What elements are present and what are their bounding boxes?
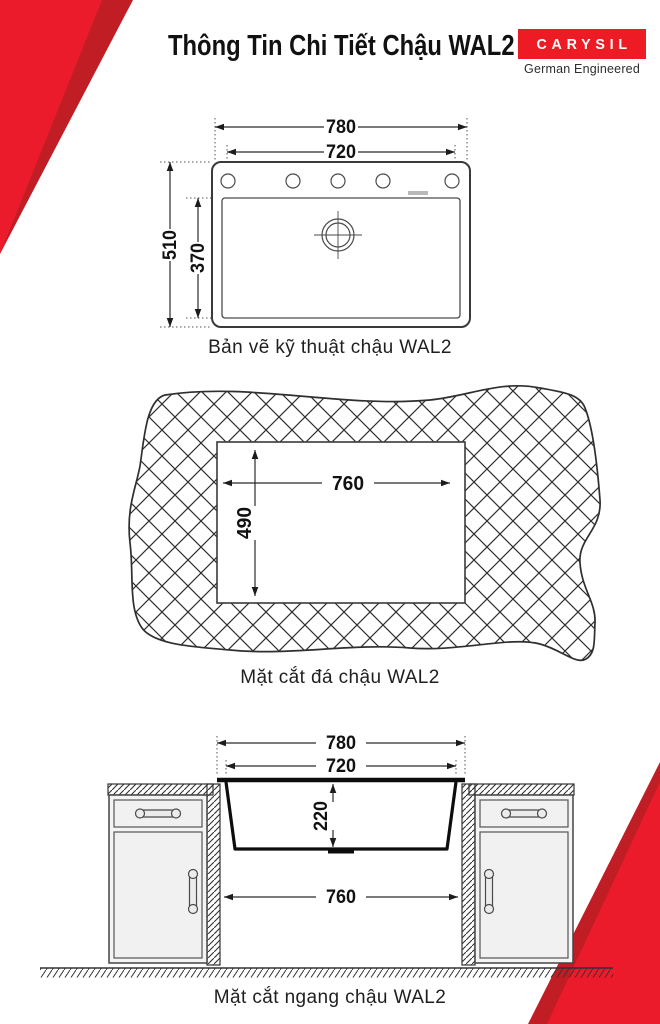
dim-label-outer-width: 780 — [326, 733, 356, 754]
caption-stone-cutout: Mặt cắt đá chậu WAL2 — [130, 667, 550, 689]
brand-tagline: German Engineered — [518, 62, 646, 76]
dim-inner-width: 720 — [226, 756, 456, 777]
overflow-slot — [408, 191, 428, 195]
red-corner-top-left — [0, 0, 140, 260]
dim-outer-depth: 510 — [160, 162, 181, 327]
sink-bowl-profile — [217, 780, 465, 851]
carysil-logo: CARYSIL German Engineered — [518, 29, 646, 76]
ground-hatch — [40, 969, 613, 978]
door-handle — [485, 870, 494, 914]
dim-inner-depth: 370 — [188, 198, 209, 318]
dim-bowl-depth: 220 — [311, 784, 333, 847]
door — [114, 832, 202, 958]
dim-outer-width: 780 — [215, 117, 467, 138]
dim-label-inner-width: 720 — [326, 142, 356, 163]
left-cabinet — [108, 784, 220, 965]
dim-label-outer-width: 780 — [326, 117, 356, 138]
page-title: Thông Tin Chi Tiết Chậu WAL2 — [168, 30, 496, 63]
drawer-handle — [136, 809, 181, 818]
counter-strip — [469, 784, 574, 795]
page: { "header": { "title": "Thông Tin Chi Ti… — [0, 0, 660, 1024]
sink-basin-rect — [222, 198, 460, 318]
dim-label-cutout-depth: 490 — [234, 507, 256, 539]
side-panel-strip — [462, 784, 475, 965]
dim-inner-width: 720 — [227, 142, 455, 163]
dim-label-inner-depth: 370 — [188, 243, 209, 273]
drawer-handle — [502, 809, 547, 818]
brand-name: CARYSIL — [537, 36, 632, 53]
stone-cutout-drawing: 760 490 — [110, 378, 610, 670]
side-panel-strip — [207, 784, 220, 965]
red-triangle-bright — [0, 0, 102, 254]
counter-strip — [108, 784, 213, 795]
dim-label-cutout-width: 760 — [332, 473, 364, 495]
dim-outer-width: 780 — [217, 733, 465, 754]
dim-label-inner-width: 720 — [326, 756, 356, 777]
brand-box: CARYSIL — [518, 29, 646, 59]
installation-cross-section-drawing: 780 720 — [28, 718, 638, 980]
caption-cross-section: Mặt cắt ngang chậu WAL2 — [120, 987, 540, 1009]
door — [480, 832, 568, 958]
right-cabinet — [462, 784, 574, 965]
door-handle — [189, 870, 198, 914]
dim-label-outer-depth: 510 — [160, 230, 181, 260]
caption-top-view: Bản vẽ kỹ thuật chậu WAL2 — [120, 337, 540, 359]
dim-label-bowl-depth: 220 — [311, 801, 332, 831]
dim-cabinet-opening: 760 — [224, 887, 458, 908]
sink-top-view-drawing: 780 720 510 370 — [140, 105, 520, 345]
dim-label-cabinet-opening: 760 — [326, 887, 356, 908]
